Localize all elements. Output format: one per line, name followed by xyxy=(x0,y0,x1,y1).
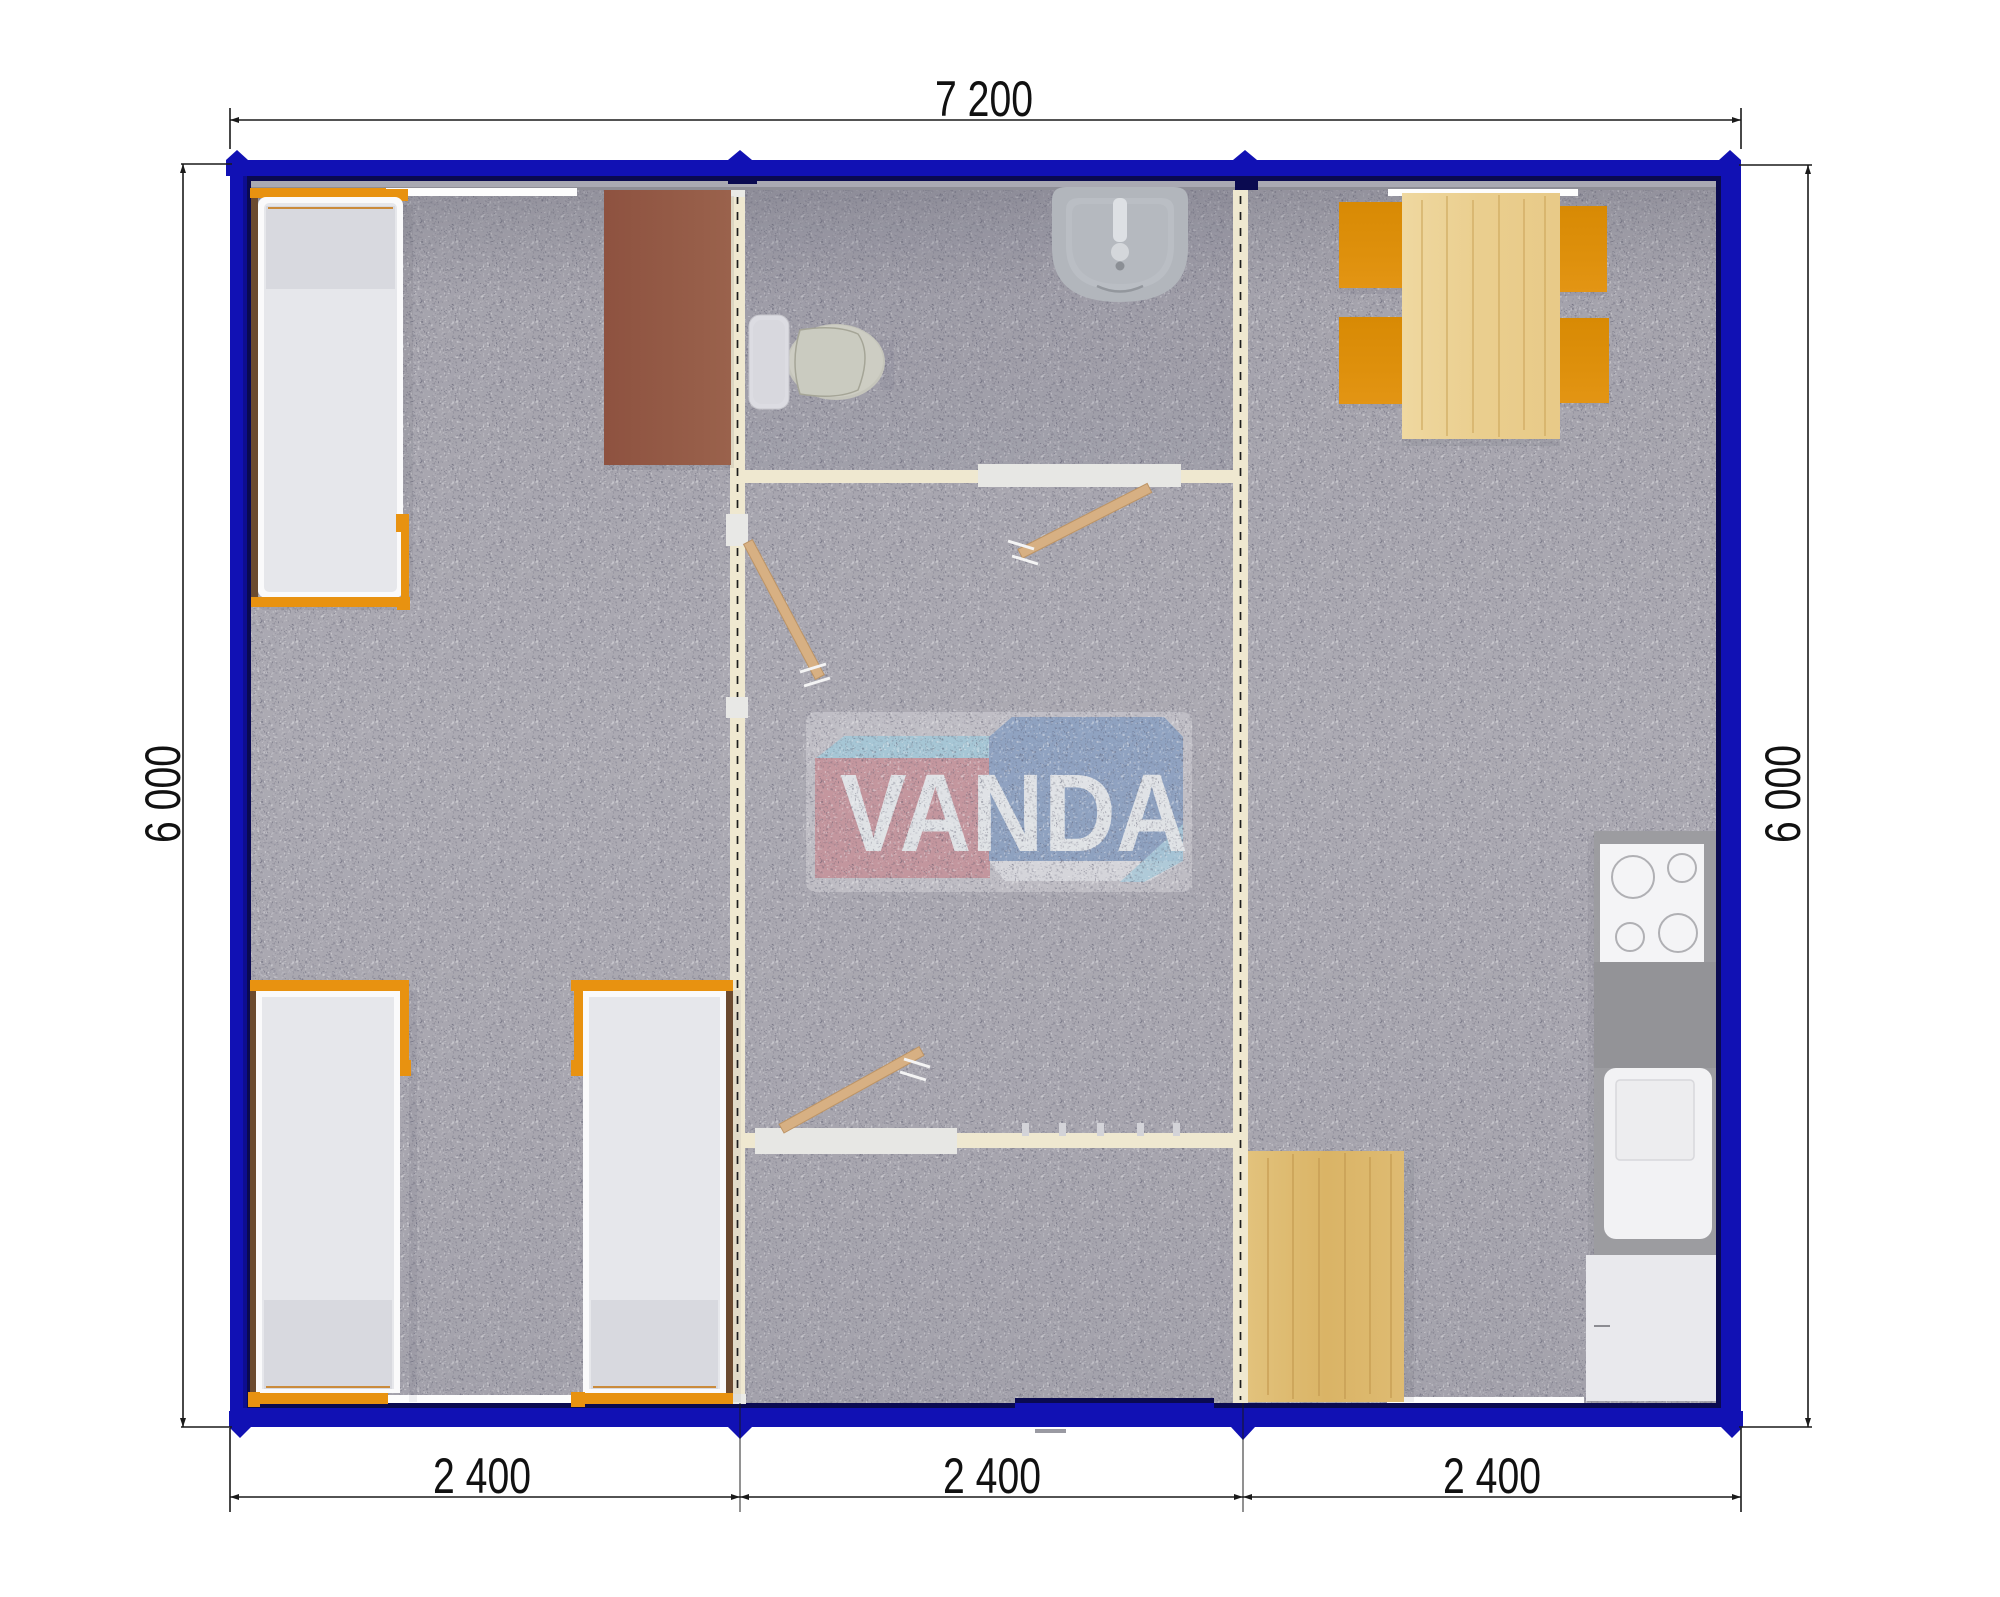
svg-text:6 000: 6 000 xyxy=(1755,745,1811,843)
svg-text:2 400: 2 400 xyxy=(433,1448,531,1504)
svg-text:2 400: 2 400 xyxy=(943,1448,1041,1504)
svg-text:6 000: 6 000 xyxy=(135,745,191,843)
svg-text:7 200: 7 200 xyxy=(935,71,1033,127)
svg-text:2 400: 2 400 xyxy=(1443,1448,1541,1504)
